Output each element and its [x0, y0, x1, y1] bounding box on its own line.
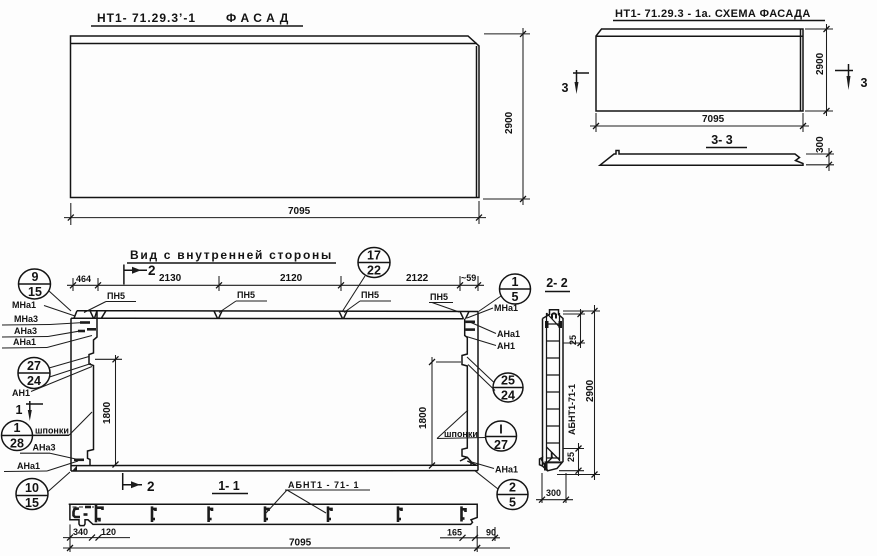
- svg-text:АНа3: АНа3: [33, 443, 56, 453]
- svg-text:340: 340: [73, 527, 88, 537]
- svg-text:300: 300: [815, 136, 826, 153]
- svg-text:1800: 1800: [102, 401, 113, 424]
- svg-text:АНа1: АНа1: [497, 329, 520, 339]
- svg-text:5: 5: [509, 496, 516, 510]
- svg-text:Вид с внутренней стороны: Вид с внутренней стороны: [130, 248, 333, 262]
- svg-text:7095: 7095: [702, 114, 725, 125]
- svg-text:АН1: АН1: [497, 341, 515, 351]
- svg-text:ПН5: ПН5: [361, 290, 379, 300]
- svg-text:АНа1: АНа1: [13, 337, 36, 347]
- svg-text:1- 1: 1- 1: [218, 479, 240, 493]
- svg-text:24: 24: [27, 374, 41, 388]
- svg-text:МНа3: МНа3: [14, 314, 38, 324]
- svg-text:7095: 7095: [288, 206, 311, 217]
- svg-text:АН1: АН1: [12, 388, 30, 398]
- svg-text:22: 22: [367, 264, 381, 278]
- svg-text:1800: 1800: [418, 406, 429, 429]
- svg-text:АНа3: АНа3: [14, 326, 37, 336]
- svg-text:10: 10: [25, 481, 39, 495]
- svg-text:~59: ~59: [461, 273, 476, 283]
- svg-text:2900: 2900: [815, 52, 826, 75]
- svg-text:24: 24: [501, 389, 515, 403]
- svg-text:НТ1- 71.29.3’-1: НТ1- 71.29.3’-1: [97, 11, 196, 25]
- svg-text:7095: 7095: [289, 538, 312, 549]
- svg-text:90: 90: [486, 528, 496, 538]
- svg-text:МНа1: МНа1: [12, 300, 36, 310]
- svg-text:2- 2: 2- 2: [546, 276, 568, 290]
- svg-text:МНа1: МНа1: [494, 303, 518, 313]
- svg-text:ПН5: ПН5: [107, 291, 125, 301]
- svg-text:28: 28: [10, 437, 24, 451]
- svg-text:9: 9: [32, 270, 39, 284]
- svg-text:ПН5: ПН5: [237, 290, 255, 300]
- svg-text:1: 1: [14, 421, 21, 435]
- svg-text:27: 27: [494, 438, 508, 452]
- svg-text:300: 300: [546, 488, 561, 498]
- svg-text:шпонки: шпонки: [35, 426, 69, 436]
- svg-text:1: 1: [16, 403, 23, 417]
- svg-text:5: 5: [512, 290, 519, 304]
- svg-text:2: 2: [147, 479, 155, 494]
- svg-text:25: 25: [566, 452, 576, 462]
- svg-text:2900: 2900: [504, 111, 515, 134]
- svg-text:ФАСАД: ФАСАД: [226, 11, 293, 25]
- svg-text:2130: 2130: [159, 273, 182, 284]
- svg-text:I: I: [499, 423, 502, 437]
- svg-text:3- 3: 3- 3: [711, 133, 733, 147]
- svg-text:2900: 2900: [585, 379, 596, 402]
- svg-text:464: 464: [76, 274, 91, 284]
- svg-text:1: 1: [512, 275, 519, 289]
- svg-text:2120: 2120: [280, 273, 303, 284]
- svg-text:165: 165: [447, 528, 462, 538]
- svg-text:25: 25: [501, 374, 515, 388]
- svg-text:АНа1: АНа1: [17, 461, 40, 471]
- svg-text:25: 25: [568, 335, 578, 345]
- svg-text:ПН5: ПН5: [430, 292, 448, 302]
- svg-text:2122: 2122: [406, 273, 429, 284]
- svg-text:3: 3: [562, 81, 569, 95]
- svg-text:120: 120: [101, 527, 116, 537]
- svg-text:15: 15: [28, 285, 42, 299]
- svg-text:15: 15: [25, 496, 39, 510]
- svg-text:2: 2: [509, 481, 516, 495]
- svg-text:2: 2: [148, 263, 156, 278]
- svg-text:3: 3: [861, 76, 868, 90]
- svg-text:АБНТ1-71-1: АБНТ1-71-1: [567, 384, 577, 435]
- svg-text:НТ1- 71.29.3 - 1а. СХЕМА ФАСАД: НТ1- 71.29.3 - 1а. СХЕМА ФАСАДА: [615, 8, 811, 20]
- svg-text:17: 17: [367, 249, 381, 263]
- svg-text:АНа1: АНа1: [495, 465, 518, 475]
- svg-text:27: 27: [27, 359, 41, 373]
- svg-text:АБНТ1 - 71- 1: АБНТ1 - 71- 1: [288, 480, 359, 490]
